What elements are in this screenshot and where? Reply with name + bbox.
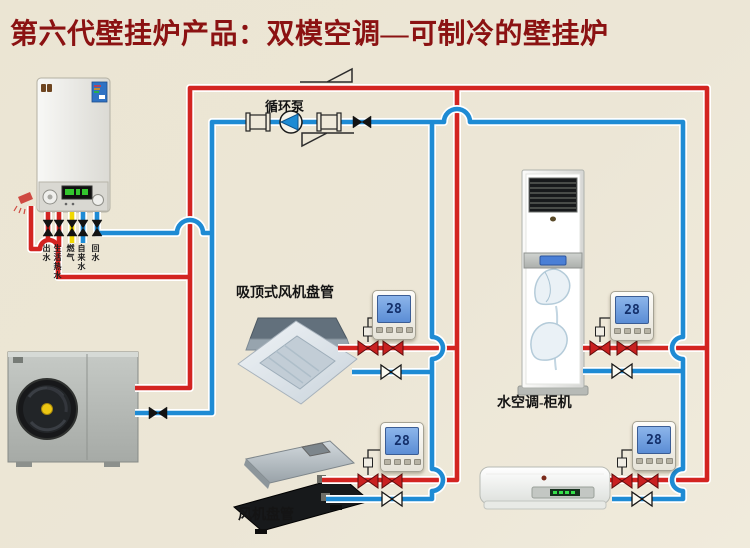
thermostat-buttons: [633, 458, 675, 464]
wall-ac-display: [532, 487, 594, 498]
thermostat-temp: 28: [394, 434, 410, 449]
floor-cabinet-ac-unit: [518, 170, 588, 395]
thermostat-buttons: [611, 328, 653, 334]
wall-ac-logo: [542, 476, 547, 481]
boiler-pipe-label-supply: 出水: [42, 244, 50, 262]
thermostat-buttons: [373, 327, 415, 333]
wall-split-ac-unit: [480, 467, 610, 509]
pipe-union: [246, 113, 270, 131]
actuator: [618, 458, 627, 467]
cabinet-display-strip: [524, 253, 582, 268]
pipe-union: [317, 113, 341, 131]
return-header-valve: [353, 116, 371, 128]
energy-label: [92, 82, 107, 102]
boiler-pipe-label-dhw: 生活热水: [53, 244, 61, 280]
flow-arrow-right: [300, 69, 352, 82]
outdoor-unit-logo: [13, 357, 23, 363]
boiler-brand-logo: [41, 84, 46, 92]
thermostat-cassette: 28: [372, 290, 416, 340]
actuator: [364, 458, 373, 467]
thermostat-temp: 28: [624, 303, 640, 318]
thermostat-buttons: [381, 459, 423, 465]
wall-hung-boiler: [37, 78, 110, 212]
outdoor-heat-pump-unit: [8, 352, 138, 467]
thermostat-screen: 28: [637, 426, 671, 454]
outdoor-line-valve: [149, 407, 167, 419]
diagram-canvas: 第六代壁挂炉产品：双模空调—可制冷的壁挂炉 循环泵 吸顶式风机盘管 风机盘管 水…: [0, 0, 750, 548]
thermostat-cabinet: 28: [610, 291, 654, 341]
boiler-pipe-label-gas: 燃气: [66, 244, 74, 262]
cabinet-logo: [550, 217, 556, 222]
flow-arrow-left: [302, 133, 354, 146]
thermostat-screen: 28: [385, 427, 419, 455]
thermostat-wall-ac: 28: [632, 421, 676, 471]
boiler-pipe-label-return: 回水: [91, 244, 99, 262]
cabinet-grille: [529, 178, 577, 212]
boiler-control-panel: [39, 182, 108, 211]
thermostat-screen: 28: [615, 296, 649, 324]
motorized-valve: [590, 341, 610, 355]
actuator: [596, 327, 605, 336]
floor-cabinet-label: 水空调-柜机: [497, 392, 572, 412]
pipe-hot-main-loop: [135, 88, 707, 480]
boiler-knob: [93, 195, 104, 206]
ducted-fan-coil-label: 风机盘管: [238, 504, 294, 524]
outdoor-fan: [17, 379, 77, 439]
cassette-fan-coil-unit: [238, 318, 357, 404]
thermostat-temp: 28: [646, 433, 662, 448]
thermostat-temp: 28: [386, 302, 402, 317]
cassette-fan-coil-label: 吸顶式风机盘管: [236, 282, 334, 302]
pump-label: 循环泵: [265, 96, 304, 115]
boiler-pipe-label-tap: 自来水: [77, 244, 85, 271]
thermostat-screen: 28: [377, 295, 411, 323]
thermostat-ducted: 28: [380, 422, 424, 472]
motorized-valve: [358, 341, 378, 355]
page-title: 第六代壁挂炉产品：双模空调—可制冷的壁挂炉: [10, 12, 710, 52]
